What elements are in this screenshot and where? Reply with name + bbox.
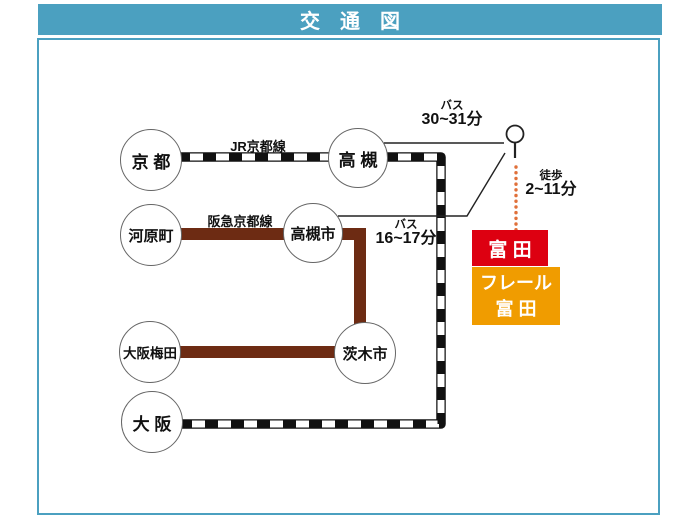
station-label: 高槻市 bbox=[290, 223, 335, 244]
station-osaka-umeda: 大阪梅田 bbox=[119, 321, 181, 383]
station-label: 京 都 bbox=[132, 148, 171, 173]
station-label: 大 阪 bbox=[133, 410, 172, 435]
walk-duration-value: 2~11分 bbox=[512, 182, 590, 199]
station-label: 茨木市 bbox=[342, 343, 387, 364]
access-map: 交 通 図 京 都 高 槻 河原町 高槻市 大阪梅田 茨木市 大 阪 JR京都線… bbox=[0, 0, 700, 525]
page-title: 交 通 図 bbox=[38, 4, 662, 35]
station-kawaramachi: 河原町 bbox=[120, 204, 182, 266]
station-osaka: 大 阪 bbox=[121, 391, 183, 453]
jr-line-label: JR京都線 bbox=[210, 136, 306, 155]
station-takatsuki: 高 槻 bbox=[328, 128, 388, 188]
property-name-line2: 富 田 bbox=[495, 296, 536, 322]
station-label: 河原町 bbox=[128, 225, 173, 246]
hankyu-line-label: 阪急京都線 bbox=[192, 211, 288, 230]
bus-duration-takatsukishi: バス 16~17分 bbox=[367, 219, 445, 248]
walk-duration: 徒歩 2~11分 bbox=[512, 170, 590, 199]
bus-stop-name: 富 田 bbox=[488, 235, 531, 262]
bus-stop-tomita-badge: 富 田 bbox=[472, 230, 548, 266]
station-label: 高 槻 bbox=[339, 146, 378, 171]
bus-duration-value: 30~31分 bbox=[403, 112, 501, 129]
bus-duration-takatsuki: バス 30~31分 bbox=[403, 100, 501, 129]
property-name-line1: フレール bbox=[480, 270, 552, 296]
station-ibarakishi: 茨木市 bbox=[334, 322, 396, 384]
station-kyoto: 京 都 bbox=[120, 129, 182, 191]
station-takatsukishi: 高槻市 bbox=[283, 203, 343, 263]
station-label: 大阪梅田 bbox=[123, 342, 177, 362]
property-frail-tomita-badge: フレール 富 田 bbox=[472, 267, 560, 325]
bus-duration-value: 16~17分 bbox=[367, 231, 445, 248]
